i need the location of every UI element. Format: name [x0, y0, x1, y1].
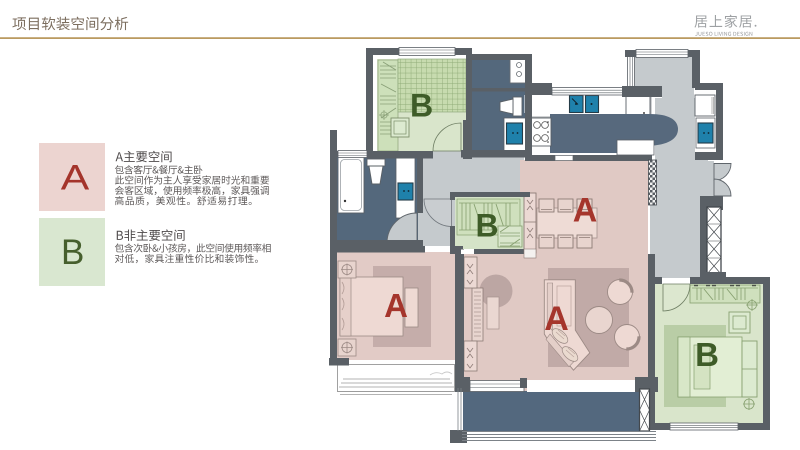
svg-text:B: B — [475, 208, 498, 244]
svg-text:A: A — [61, 159, 89, 198]
svg-text:A: A — [384, 287, 408, 324]
svg-text:B: B — [410, 88, 433, 124]
svg-text:B: B — [695, 336, 719, 373]
svg-text:B: B — [61, 233, 84, 272]
svg-text:A: A — [544, 300, 569, 338]
svg-text:A: A — [573, 192, 598, 230]
